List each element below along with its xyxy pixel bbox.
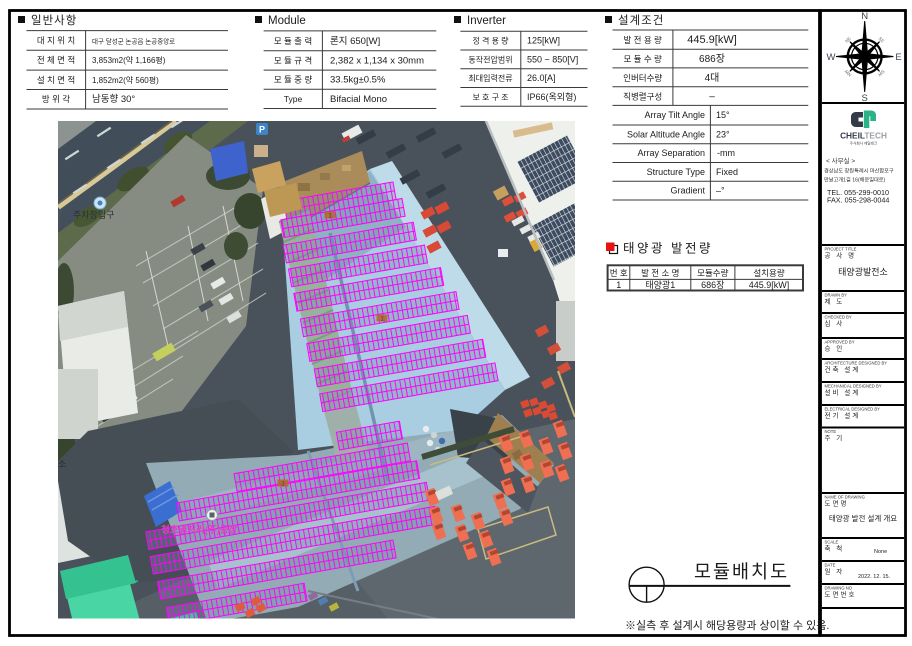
svg-text:445.9[kW]: 445.9[kW]	[687, 34, 737, 46]
svg-text:정 격 용 량: 정 격 용 량	[472, 36, 509, 46]
svg-text:Type: Type	[284, 94, 303, 104]
svg-text:도면번호: 도면번호	[825, 590, 857, 599]
svg-text:None: None	[874, 549, 887, 555]
svg-text:모 듈 수 량: 모 듈 수 량	[624, 54, 663, 64]
svg-text:W: W	[827, 52, 836, 63]
svg-text:소: 소	[58, 459, 66, 469]
svg-text:전기 설계: 전기 설계	[825, 411, 861, 420]
svg-text:S: S	[862, 93, 868, 104]
svg-text:26.0[A]: 26.0[A]	[527, 73, 556, 83]
svg-text:주식회사 제일테크: 주식회사 제일테크	[850, 141, 878, 146]
svg-text:인버터수량: 인버터수량	[623, 73, 662, 83]
svg-text:축 척: 축 척	[825, 544, 845, 553]
svg-text:설치용량: 설치용량	[753, 268, 784, 278]
svg-text:550 ~ 850[V]: 550 ~ 850[V]	[527, 54, 578, 64]
svg-text:2,382 x 1,134 x 30mm: 2,382 x 1,134 x 30mm	[330, 55, 424, 66]
svg-text:Bifacial Mono: Bifacial Mono	[330, 94, 387, 105]
svg-text:DRAWING NO: DRAWING NO	[825, 586, 853, 591]
svg-text:모듈배치도: 모듈배치도	[694, 561, 789, 582]
svg-text:23°: 23°	[716, 129, 730, 139]
svg-text:만날고개1길 16(해운일대로): 만날고개1길 16(해운일대로)	[824, 176, 886, 184]
svg-text:건축 설계: 건축 설계	[825, 365, 861, 374]
svg-text:제 도: 제 도	[825, 298, 845, 306]
svg-text:MECHANICAL DESIGNED BY: MECHANICAL DESIGNED BY	[825, 384, 882, 389]
svg-text:N: N	[861, 11, 868, 22]
svg-text:방 위 각: 방 위 각	[42, 94, 70, 104]
svg-text:※실측 후 설계시 해당용량과 상이할 수 있음.: ※실측 후 설계시 해당용량과 상이할 수 있음.	[625, 618, 829, 632]
svg-text:Fixed: Fixed	[716, 167, 738, 177]
svg-text:-mm: -mm	[717, 148, 735, 158]
svg-text:4대: 4대	[705, 72, 720, 84]
svg-text:Inverter: Inverter	[467, 15, 506, 27]
svg-text:승 인: 승 인	[825, 344, 845, 353]
svg-text:대구 달성군 논공읍 논공중앙로: 대구 달성군 논공읍 논공중앙로	[92, 37, 175, 46]
svg-text:발 전 용 량: 발 전 용 량	[624, 35, 663, 45]
svg-text:Module: Module	[268, 15, 306, 27]
svg-text:설비 설계: 설비 설계	[825, 388, 861, 397]
svg-text:33.5kg±0.5%: 33.5kg±0.5%	[330, 75, 386, 86]
svg-text:125[kW]: 125[kW]	[527, 36, 560, 46]
svg-text:3,853m2(약 1,166평): 3,853m2(약 1,166평)	[92, 55, 166, 65]
svg-text:동작전압범위: 동작전압범위	[468, 54, 512, 64]
svg-text:E: E	[895, 52, 901, 63]
svg-text:심 사: 심 사	[825, 319, 845, 328]
svg-text:발 전 소 명: 발 전 소 명	[641, 268, 679, 278]
svg-text:보 호 구 조: 보 호 구 조	[472, 93, 508, 102]
svg-text:NAME OF DRAWING: NAME OF DRAWING	[825, 495, 865, 500]
svg-text:직병렬구성: 직병렬구성	[623, 92, 662, 102]
svg-text:태양광 발전량: 태양광 발전량	[623, 242, 713, 256]
svg-text:15°: 15°	[716, 110, 730, 120]
svg-text:도면명: 도면명	[825, 499, 849, 508]
svg-text:1,852m2(약 560평): 1,852m2(약 560평)	[92, 75, 159, 85]
svg-text:Structure Type: Structure Type	[647, 167, 705, 177]
svg-text:론지 650[W]: 론지 650[W]	[330, 36, 380, 47]
svg-text:태양광 발전 설계 개요: 태양광 발전 설계 개요	[829, 513, 897, 523]
svg-text:< 사무실 >: < 사무실 >	[826, 156, 855, 165]
svg-text:686장: 686장	[701, 280, 724, 290]
svg-text:전 체 면 적: 전 체 면 적	[37, 55, 75, 65]
svg-text:모 듈 출 력: 모 듈 출 력	[274, 36, 312, 46]
svg-text:686장: 686장	[699, 53, 725, 65]
svg-text:ARCHITECTURE DESIGNED BY: ARCHITECTURE DESIGNED BY	[825, 361, 888, 366]
svg-text:공 사 명: 공 사 명	[825, 251, 857, 260]
svg-text:SCALE: SCALE	[825, 540, 839, 545]
svg-text:최대입력전류: 최대입력전류	[468, 73, 512, 83]
svg-text:PROJECT TITLE: PROJECT TITLE	[825, 247, 857, 252]
svg-text:모 듈 중 량: 모 듈 중 량	[274, 75, 313, 85]
svg-text:Gradient: Gradient	[670, 186, 705, 196]
svg-text:일 자: 일 자	[825, 567, 845, 576]
svg-text:주차장입구: 주차장입구	[73, 209, 114, 220]
svg-text:–: –	[709, 92, 715, 103]
svg-text:2022. 12. 15.: 2022. 12. 15.	[858, 574, 891, 580]
svg-text:경상남도 창원특례시 마산합포구: 경상남도 창원특례시 마산합포구	[824, 167, 894, 175]
svg-text:일반사항: 일반사항	[31, 13, 77, 27]
svg-text:대 지 위 치: 대 지 위 치	[37, 36, 75, 46]
svg-text:Solar Altitude Angle: Solar Altitude Angle	[627, 129, 705, 139]
svg-text:NOTE: NOTE	[825, 429, 837, 434]
svg-text:DRAWN BY: DRAWN BY	[825, 293, 848, 298]
svg-text:Array Tilt Angle: Array Tilt Angle	[644, 110, 705, 120]
svg-text:445.9[kW]: 445.9[kW]	[749, 280, 790, 290]
svg-text:태양광1: 태양광1	[645, 279, 675, 290]
svg-text:IP66(옥외형): IP66(옥외형)	[527, 91, 576, 102]
svg-text:CHECKED BY: CHECKED BY	[825, 315, 852, 320]
svg-text:청호열처리(주)공장: 청호열처리(주)공장	[161, 524, 238, 536]
svg-text:APPROVED BY: APPROVED BY	[825, 340, 855, 345]
svg-text:P: P	[259, 125, 265, 135]
svg-text:ELECTRICAL DESIGNED BY: ELECTRICAL DESIGNED BY	[825, 407, 881, 412]
svg-text:남동향 30°: 남동향 30°	[92, 93, 135, 105]
svg-text:태양광발전소: 태양광발전소	[838, 266, 888, 277]
svg-text:DATE: DATE	[825, 563, 836, 568]
svg-text:Array Separation: Array Separation	[637, 148, 705, 158]
svg-text:번 호: 번 호	[610, 268, 628, 278]
svg-text:CHEILTECH: CHEILTECH	[840, 131, 887, 141]
svg-text:설 치 면 적: 설 치 면 적	[37, 75, 75, 85]
svg-text:모듈수량: 모듈수량	[697, 268, 728, 278]
svg-text:1: 1	[616, 280, 621, 290]
svg-text:–°: –°	[716, 186, 725, 196]
svg-text:주 기: 주 기	[825, 433, 845, 442]
svg-text:모 듈 규 격: 모 듈 규 격	[274, 55, 312, 65]
svg-text:FAX. 055-298-0044: FAX. 055-298-0044	[827, 196, 889, 205]
svg-text:설계조건: 설계조건	[618, 14, 664, 27]
